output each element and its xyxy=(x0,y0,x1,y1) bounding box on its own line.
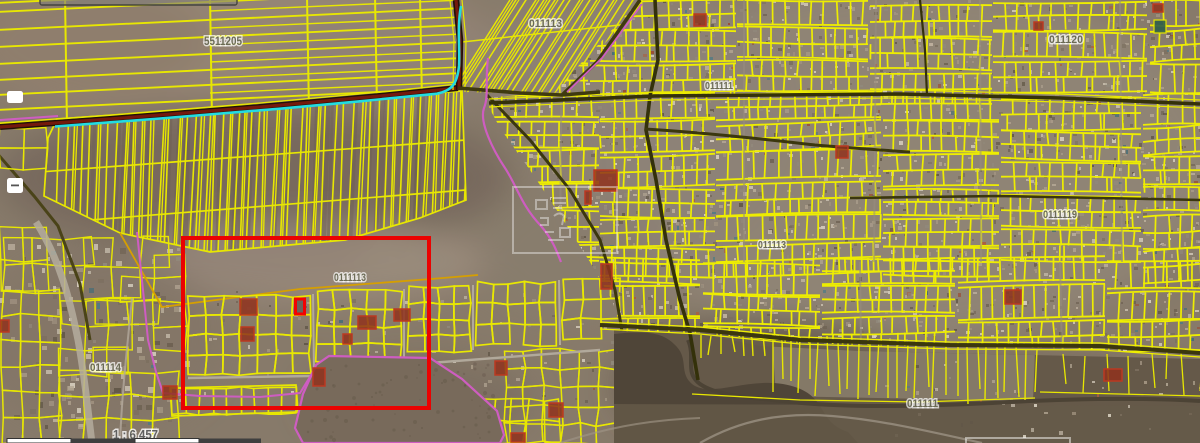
svg-text:011120: 011120 xyxy=(1049,34,1083,46)
svg-text:5511205: 5511205 xyxy=(204,34,242,48)
svg-text:011114: 011114 xyxy=(90,362,122,374)
svg-text:011113: 011113 xyxy=(758,239,786,251)
svg-text:0111113: 0111113 xyxy=(334,272,366,284)
svg-text:011113: 011113 xyxy=(529,18,562,30)
svg-text:011111: 011111 xyxy=(907,398,938,410)
svg-text:0111119: 0111119 xyxy=(1043,209,1077,221)
svg-text:011111: 011111 xyxy=(705,80,733,92)
